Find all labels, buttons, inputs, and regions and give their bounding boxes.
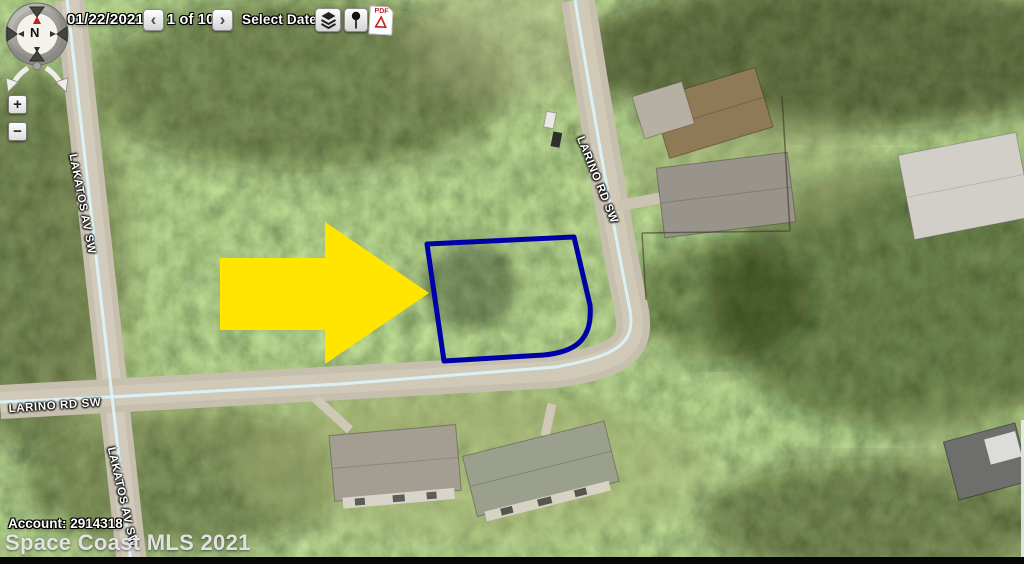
date-display: 01/22/2021 xyxy=(67,11,144,28)
compass-north-label: N xyxy=(30,25,39,40)
chevron-left-icon: ‹ xyxy=(151,11,157,28)
acrobat-logo-icon xyxy=(374,16,389,30)
pin-button[interactable] xyxy=(344,8,368,32)
select-date-dropdown[interactable]: Select Date▾ xyxy=(242,12,326,27)
mls-watermark: Space Coast MLS 2021 xyxy=(5,530,251,556)
prev-date-button[interactable]: ‹ xyxy=(143,9,164,31)
account-number-label: Account: 2914318 xyxy=(8,516,123,531)
compass-knob xyxy=(33,62,41,70)
bottom-letterbox-bar xyxy=(0,557,1024,564)
aerial-map-canvas[interactable] xyxy=(0,0,1024,564)
pin-icon xyxy=(348,11,364,29)
layers-button[interactable] xyxy=(315,8,341,32)
layers-icon xyxy=(320,11,337,29)
zoom-in-button[interactable]: + xyxy=(8,95,27,114)
chevron-right-icon: › xyxy=(220,11,226,28)
pdf-export-button[interactable]: PDF xyxy=(368,5,393,35)
next-date-button[interactable]: › xyxy=(212,9,233,31)
map-viewer-window: LAKATOS AV SW LARINO RD SW LARINO RD SW … xyxy=(0,0,1024,564)
select-date-label: Select Date xyxy=(242,12,317,27)
zoom-out-button[interactable]: − xyxy=(8,122,27,141)
house xyxy=(329,425,462,510)
